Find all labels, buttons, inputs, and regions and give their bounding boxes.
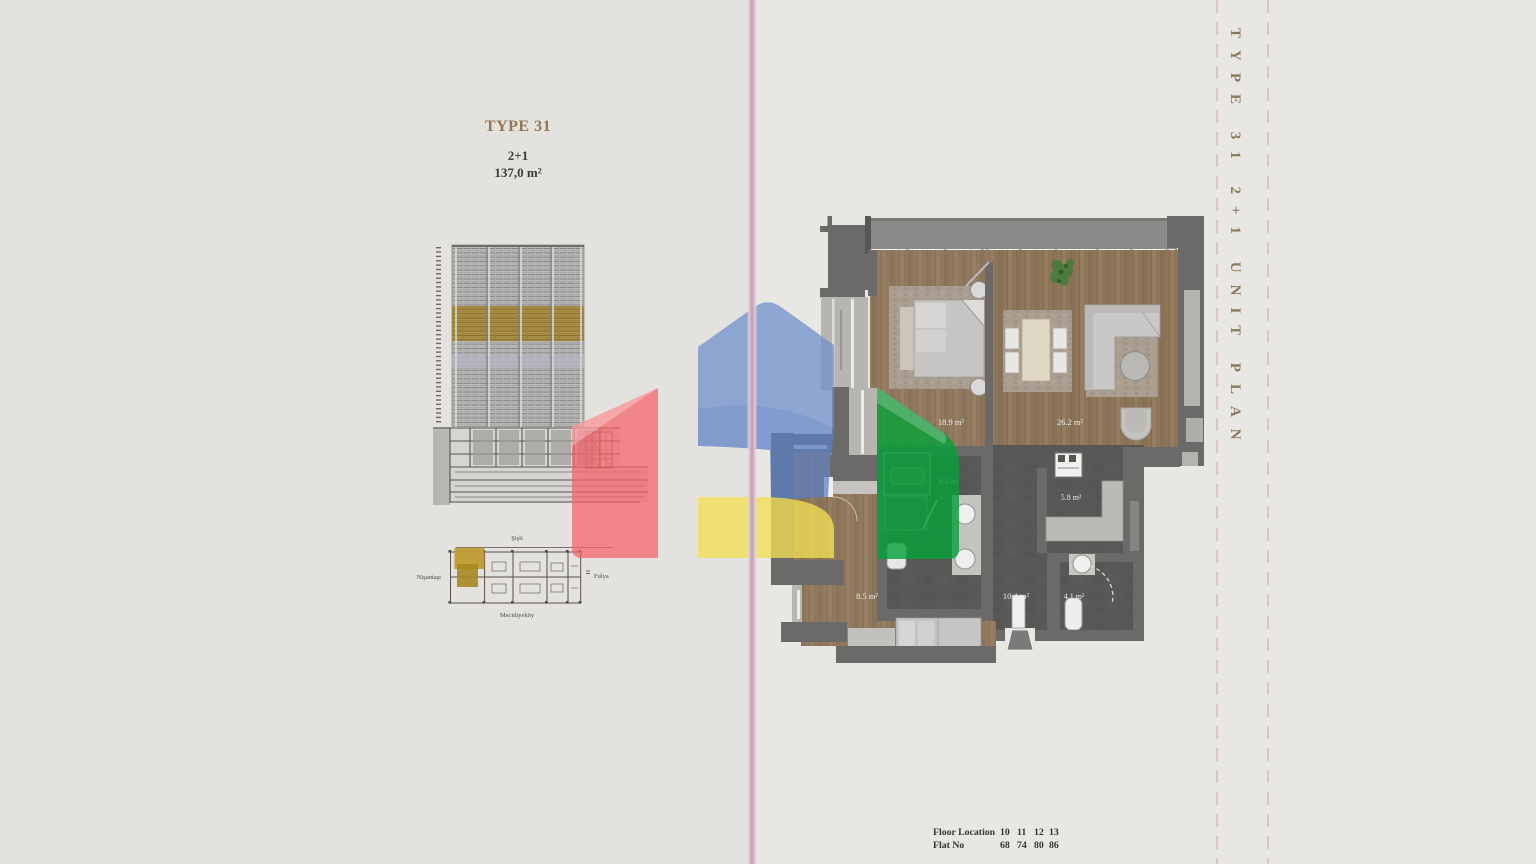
svg-text:8.5 m²: 8.5 m² [856,591,878,601]
svg-text:10: 10 [1000,827,1010,838]
svg-text:Flat No: Flat No [933,840,964,851]
svg-text:Fulya: Fulya [594,573,609,580]
svg-text:Mecidiyeköy: Mecidiyeköy [500,612,535,619]
svg-text:86: 86 [1049,840,1059,851]
svg-text:2+1: 2+1 [508,148,528,163]
svg-text:5.8 m²: 5.8 m² [1061,493,1082,502]
svg-text:26.2 m²: 26.2 m² [1057,417,1084,427]
svg-text:Şişli: Şişli [511,535,523,542]
svg-text:80: 80 [1034,840,1044,851]
svg-text:Floor Location: Floor Location [933,827,996,838]
svg-text:TYPE 31: TYPE 31 [485,118,551,135]
svg-text:74: 74 [1017,840,1027,851]
svg-text:Nişantaşı: Nişantaşı [417,574,441,581]
svg-text:13: 13 [1049,827,1059,838]
svg-text:68: 68 [1000,840,1010,851]
svg-text:137,0 m²: 137,0 m² [494,165,541,180]
svg-text:12: 12 [1034,827,1044,838]
svg-text:11: 11 [1017,827,1026,838]
svg-text:4.1 m²: 4.1 m² [1064,592,1085,601]
svg-text:10.4 m²: 10.4 m² [1003,591,1030,601]
svg-text:TYPE 31 2+1 UNIT PLAN: TYPE 31 2+1 UNIT PLAN [1227,28,1243,452]
svg-text:18.9 m²: 18.9 m² [938,417,965,427]
